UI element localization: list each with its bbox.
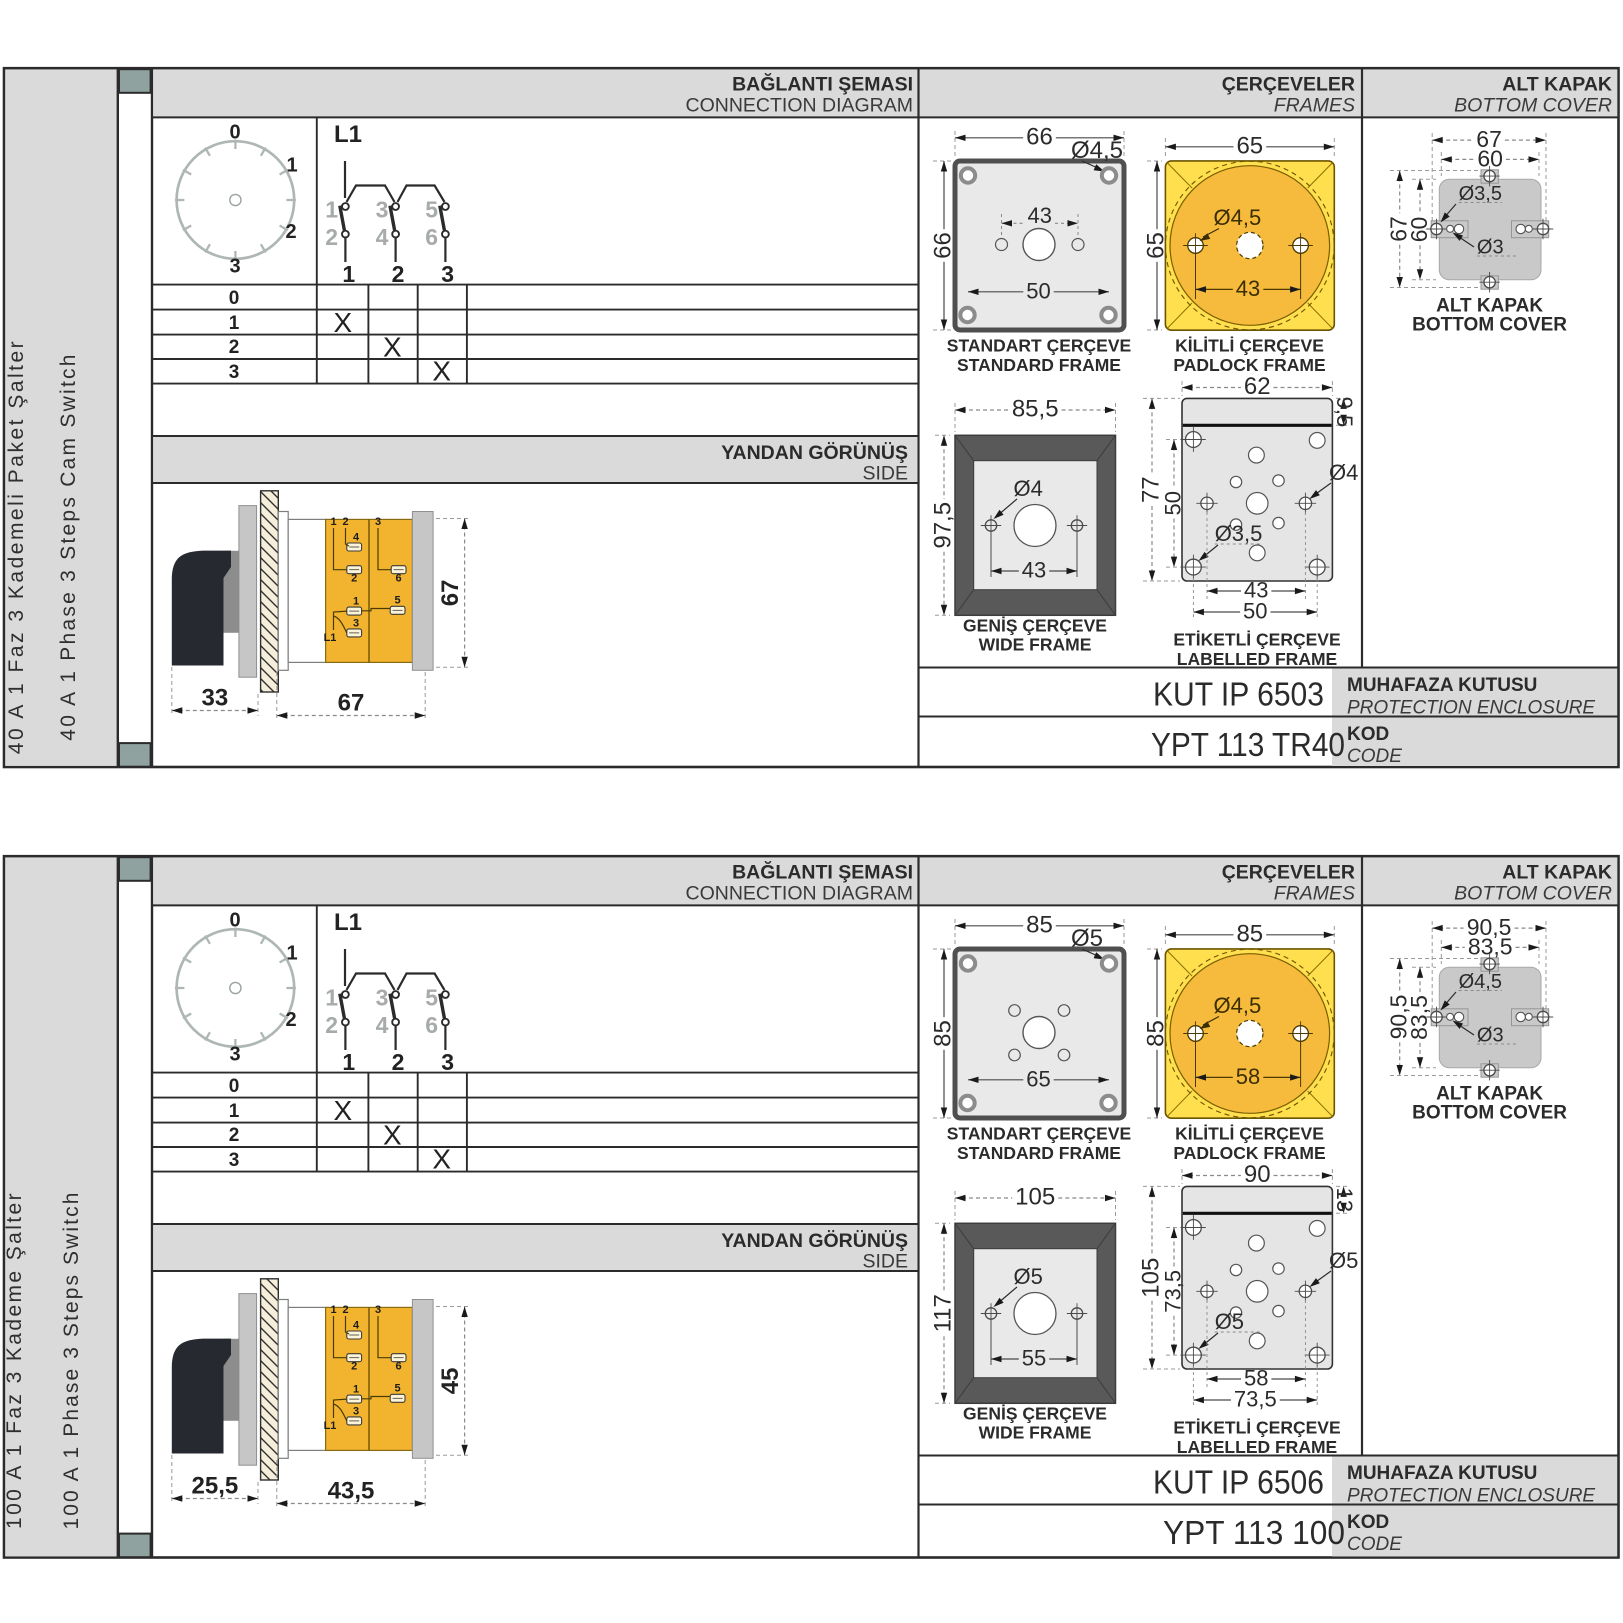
svg-text:60: 60: [1477, 145, 1503, 171]
svg-text:Ø5: Ø5: [1014, 1264, 1043, 1289]
svg-text:Ø3,5: Ø3,5: [1215, 521, 1263, 546]
svg-text:Ø4: Ø4: [1014, 476, 1043, 501]
svg-text:STANDART ÇERÇEVE: STANDART ÇERÇEVE: [947, 1124, 1131, 1144]
svg-text:X: X: [432, 356, 451, 387]
svg-text:3: 3: [375, 516, 381, 528]
svg-text:STANDARD FRAME: STANDARD FRAME: [957, 355, 1121, 375]
svg-text:2: 2: [325, 1012, 338, 1038]
svg-text:4: 4: [353, 532, 360, 544]
svg-text:105: 105: [1015, 1184, 1055, 1211]
svg-text:2: 2: [351, 1361, 357, 1373]
svg-text:Ø5: Ø5: [1329, 1248, 1358, 1273]
svg-text:85: 85: [1236, 920, 1263, 947]
svg-text:CODE: CODE: [1347, 1534, 1402, 1555]
svg-text:1: 1: [330, 516, 336, 528]
svg-text:73,5: 73,5: [1234, 1387, 1277, 1412]
svg-text:ALT KAPAK: ALT KAPAK: [1436, 1084, 1543, 1105]
svg-text:MUHAFAZA KUTUSU: MUHAFAZA KUTUSU: [1347, 675, 1537, 696]
svg-text:40 A 1 Phase 3 Steps Cam Switc: 40 A 1 Phase 3 Steps Cam Switch: [57, 352, 80, 740]
svg-text:Ø3: Ø3: [1477, 1025, 1504, 1047]
svg-text:SIDE: SIDE: [862, 463, 908, 485]
svg-text:3: 3: [441, 261, 454, 287]
svg-text:67: 67: [437, 580, 464, 607]
svg-text:60: 60: [1406, 217, 1432, 243]
svg-text:ALT KAPAK: ALT KAPAK: [1502, 74, 1612, 96]
svg-text:BAĞLANTI ŞEMASI: BAĞLANTI ŞEMASI: [732, 861, 913, 884]
svg-text:LABELLED FRAME: LABELLED FRAME: [1177, 649, 1337, 669]
svg-text:3: 3: [229, 362, 240, 383]
svg-text:3: 3: [229, 1150, 240, 1171]
svg-text:2: 2: [229, 1125, 240, 1146]
svg-text:5: 5: [425, 985, 438, 1011]
svg-text:6: 6: [425, 1012, 438, 1038]
svg-text:X: X: [383, 1119, 402, 1150]
svg-text:4: 4: [353, 1320, 360, 1332]
svg-text:SIDE: SIDE: [862, 1251, 908, 1273]
svg-text:1: 1: [342, 1049, 355, 1075]
svg-text:43: 43: [1028, 203, 1052, 228]
svg-text:X: X: [333, 307, 352, 338]
svg-text:6: 6: [425, 224, 438, 250]
svg-text:62: 62: [1244, 373, 1271, 400]
svg-text:X: X: [383, 331, 402, 362]
svg-text:Ø4,5: Ø4,5: [1071, 137, 1123, 164]
svg-text:L1: L1: [334, 909, 362, 936]
svg-text:0: 0: [229, 910, 240, 932]
svg-text:YANDAN GÖRÜNÜŞ: YANDAN GÖRÜNÜŞ: [721, 1229, 908, 1252]
svg-text:97,5: 97,5: [930, 502, 957, 549]
svg-text:PADLOCK FRAME: PADLOCK FRAME: [1173, 1143, 1325, 1163]
svg-text:50: 50: [1161, 491, 1186, 515]
svg-text:ETİKETLİ ÇERÇEVE: ETİKETLİ ÇERÇEVE: [1173, 1418, 1340, 1438]
svg-text:3: 3: [353, 618, 359, 630]
svg-text:117: 117: [930, 1294, 957, 1332]
svg-text:STANDARD FRAME: STANDARD FRAME: [957, 1143, 1121, 1163]
svg-text:65: 65: [1026, 1066, 1050, 1091]
svg-text:X: X: [333, 1095, 352, 1126]
svg-text:2: 2: [325, 224, 338, 250]
svg-text:4: 4: [376, 1012, 389, 1038]
svg-text:BAĞLANTI ŞEMASI: BAĞLANTI ŞEMASI: [732, 73, 913, 96]
svg-text:1: 1: [229, 1101, 240, 1122]
svg-text:KOD: KOD: [1347, 1512, 1389, 1533]
svg-text:2: 2: [351, 573, 357, 585]
svg-text:100 A 1 Phase 3 Steps Switch: 100 A 1 Phase 3 Steps Switch: [60, 1191, 83, 1530]
svg-text:85,5: 85,5: [1012, 396, 1059, 423]
svg-text:6: 6: [396, 1361, 402, 1373]
svg-text:100 A 1 Faz 3 Kademe Şalter: 100 A 1 Faz 3 Kademe Şalter: [3, 1191, 26, 1529]
svg-text:FRAMES: FRAMES: [1274, 95, 1355, 117]
svg-text:0: 0: [229, 288, 240, 309]
svg-text:0: 0: [229, 1076, 240, 1097]
svg-text:LABELLED FRAME: LABELLED FRAME: [1177, 1437, 1337, 1457]
svg-text:L1: L1: [324, 1420, 337, 1432]
svg-text:GENİŞ ÇERÇEVE: GENİŞ ÇERÇEVE: [963, 1404, 1107, 1424]
svg-text:43: 43: [1236, 276, 1260, 301]
svg-text:MUHAFAZA KUTUSU: MUHAFAZA KUTUSU: [1347, 1463, 1537, 1484]
svg-text:ÇERÇEVELER: ÇERÇEVELER: [1222, 862, 1355, 884]
svg-text:ÇERÇEVELER: ÇERÇEVELER: [1222, 74, 1355, 96]
svg-text:2: 2: [392, 1049, 405, 1075]
svg-text:YPT 113 100: YPT 113 100: [1163, 1514, 1345, 1551]
svg-text:83,5: 83,5: [1468, 933, 1513, 959]
svg-text:BOTTOM COVER: BOTTOM COVER: [1412, 1103, 1567, 1124]
svg-text:50: 50: [1243, 599, 1267, 624]
svg-text:2: 2: [392, 261, 405, 287]
svg-text:5: 5: [395, 595, 401, 607]
svg-text:9,5: 9,5: [1332, 397, 1357, 428]
svg-text:Ø4,5: Ø4,5: [1459, 971, 1502, 993]
svg-text:3: 3: [376, 985, 389, 1011]
svg-text:5: 5: [395, 1383, 401, 1395]
svg-text:Ø4,5: Ø4,5: [1214, 205, 1262, 230]
svg-text:2: 2: [285, 221, 296, 243]
svg-text:2: 2: [342, 516, 348, 528]
svg-text:5: 5: [425, 197, 438, 223]
svg-text:25,5: 25,5: [192, 1473, 239, 1500]
svg-text:PROTECTION ENCLOSURE: PROTECTION ENCLOSURE: [1347, 698, 1595, 719]
svg-text:CONNECTION DIAGRAM: CONNECTION DIAGRAM: [685, 883, 913, 905]
svg-text:1: 1: [353, 596, 359, 608]
svg-text:YPT 113 TR40: YPT 113 TR40: [1151, 726, 1345, 763]
svg-text:3: 3: [353, 1406, 359, 1418]
svg-text:66: 66: [1026, 123, 1053, 150]
svg-text:73,5: 73,5: [1161, 1270, 1186, 1313]
svg-text:83,5: 83,5: [1406, 995, 1432, 1040]
svg-text:65: 65: [1143, 232, 1170, 259]
svg-text:WIDE FRAME: WIDE FRAME: [979, 1423, 1092, 1443]
svg-text:1: 1: [342, 261, 355, 287]
svg-text:ETİKETLİ ÇERÇEVE: ETİKETLİ ÇERÇEVE: [1173, 630, 1340, 650]
svg-text:67: 67: [338, 690, 365, 717]
svg-text:Ø5: Ø5: [1071, 925, 1103, 952]
svg-text:1: 1: [325, 197, 338, 223]
svg-text:BOTTOM COVER: BOTTOM COVER: [1412, 315, 1567, 336]
svg-text:Ø5: Ø5: [1215, 1309, 1244, 1334]
svg-text:3: 3: [441, 1049, 454, 1075]
svg-text:CODE: CODE: [1347, 746, 1402, 767]
svg-text:Ø4,5: Ø4,5: [1214, 993, 1262, 1018]
svg-text:1: 1: [330, 1304, 336, 1316]
svg-text:3: 3: [229, 1044, 240, 1066]
svg-text:1: 1: [325, 985, 338, 1011]
svg-text:GENİŞ ÇERÇEVE: GENİŞ ÇERÇEVE: [963, 616, 1107, 636]
svg-text:3: 3: [375, 1304, 381, 1316]
svg-text:45: 45: [437, 1368, 464, 1395]
svg-text:KUT IP 6503: KUT IP 6503: [1153, 676, 1324, 713]
svg-text:2: 2: [285, 1009, 296, 1031]
svg-text:43: 43: [1022, 558, 1046, 583]
svg-text:L1: L1: [334, 121, 362, 148]
svg-text:BOTTOM COVER: BOTTOM COVER: [1454, 95, 1612, 117]
svg-text:55: 55: [1022, 1346, 1046, 1371]
svg-text:4: 4: [376, 224, 389, 250]
svg-text:BOTTOM COVER: BOTTOM COVER: [1454, 883, 1612, 905]
svg-text:2: 2: [342, 1304, 348, 1316]
svg-text:65: 65: [1236, 132, 1263, 159]
svg-text:ALT KAPAK: ALT KAPAK: [1436, 296, 1543, 317]
svg-text:13: 13: [1332, 1188, 1357, 1212]
svg-text:90: 90: [1244, 1161, 1271, 1188]
svg-text:WIDE FRAME: WIDE FRAME: [979, 635, 1092, 655]
svg-text:3: 3: [376, 197, 389, 223]
svg-text:KUT IP 6506: KUT IP 6506: [1153, 1464, 1324, 1501]
svg-text:FRAMES: FRAMES: [1274, 883, 1355, 905]
svg-text:KİLİTLİ ÇERÇEVE: KİLİTLİ ÇERÇEVE: [1175, 1124, 1324, 1144]
svg-text:CONNECTION DIAGRAM: CONNECTION DIAGRAM: [685, 95, 913, 117]
svg-text:85: 85: [1143, 1020, 1170, 1047]
svg-text:2: 2: [229, 337, 240, 358]
svg-text:PROTECTION ENCLOSURE: PROTECTION ENCLOSURE: [1347, 1486, 1595, 1507]
svg-text:STANDART ÇERÇEVE: STANDART ÇERÇEVE: [947, 336, 1131, 356]
svg-text:PADLOCK FRAME: PADLOCK FRAME: [1173, 355, 1325, 375]
svg-text:Ø3: Ø3: [1477, 237, 1504, 259]
svg-text:85: 85: [1026, 911, 1053, 938]
svg-text:33: 33: [202, 685, 229, 712]
svg-text:50: 50: [1026, 278, 1050, 303]
svg-text:Ø4: Ø4: [1329, 460, 1358, 485]
svg-text:66: 66: [930, 232, 957, 259]
svg-text:43,5: 43,5: [328, 1478, 375, 1505]
svg-text:58: 58: [1236, 1064, 1260, 1089]
svg-text:3: 3: [229, 256, 240, 278]
svg-text:85: 85: [930, 1020, 957, 1047]
svg-text:40 A 1 Faz 3 Kademeli Paket Şa: 40 A 1 Faz 3 Kademeli Paket Şalter: [5, 339, 28, 754]
svg-text:Ø3,5: Ø3,5: [1459, 183, 1502, 205]
svg-text:0: 0: [229, 122, 240, 144]
svg-text:X: X: [432, 1144, 451, 1175]
svg-text:KOD: KOD: [1347, 724, 1389, 745]
svg-text:1: 1: [286, 943, 297, 965]
svg-text:1: 1: [229, 313, 240, 334]
svg-text:L1: L1: [324, 632, 337, 644]
svg-text:KİLİTLİ ÇERÇEVE: KİLİTLİ ÇERÇEVE: [1175, 336, 1324, 356]
svg-text:1: 1: [286, 155, 297, 177]
svg-text:6: 6: [396, 573, 402, 585]
svg-text:YANDAN GÖRÜNÜŞ: YANDAN GÖRÜNÜŞ: [721, 441, 908, 464]
svg-text:1: 1: [353, 1384, 359, 1396]
svg-text:ALT KAPAK: ALT KAPAK: [1502, 862, 1612, 884]
